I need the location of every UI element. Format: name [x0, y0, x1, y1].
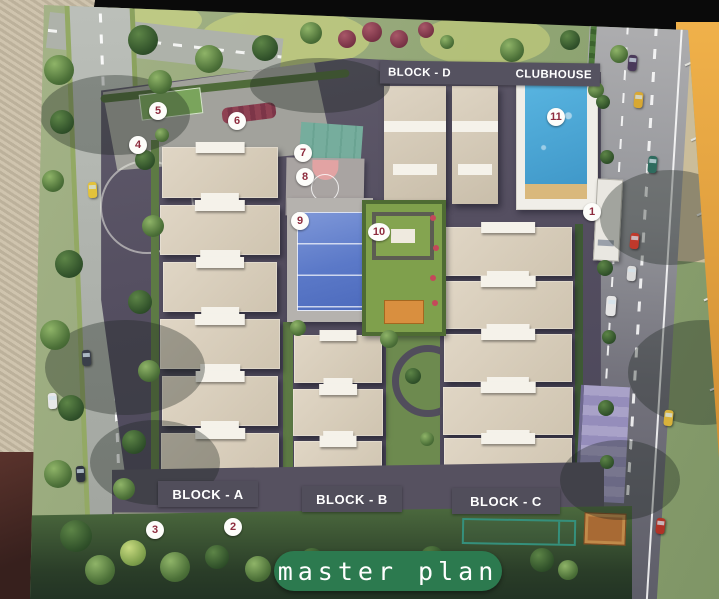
- block-c-label-text: BLOCK - C: [470, 494, 542, 509]
- tree: [602, 330, 616, 344]
- tree: [598, 400, 614, 416]
- tree: [530, 548, 554, 572]
- marker-6: 6: [228, 112, 246, 130]
- tree: [155, 128, 169, 142]
- block-c-building: [443, 281, 573, 329]
- car: [663, 410, 674, 427]
- car: [627, 55, 637, 72]
- swimming-pool: [525, 84, 587, 190]
- flower-bed: [433, 245, 439, 251]
- car: [88, 182, 98, 198]
- car: [82, 350, 92, 366]
- tree: [300, 22, 322, 44]
- marker-1: 1: [583, 203, 601, 221]
- car: [633, 92, 643, 109]
- car: [48, 393, 58, 409]
- tree-shadow: [560, 440, 680, 520]
- pool-deck: [525, 184, 587, 199]
- car: [626, 266, 636, 282]
- car: [647, 156, 657, 174]
- marker-5: 5: [149, 102, 167, 120]
- tennis-court: [297, 212, 363, 311]
- top-label-bar: BLOCK - D CLUBHOUSE: [380, 60, 600, 86]
- block-c-label: BLOCK - C: [452, 488, 560, 514]
- tree: [113, 478, 135, 500]
- tree: [558, 560, 578, 580]
- tree: [290, 320, 306, 336]
- tree: [245, 556, 271, 582]
- play-area: [384, 300, 424, 324]
- tree: [40, 320, 70, 350]
- master-plan-print: BLOCK - D CLUBHOUSE BLOCK - A BLOCK - B …: [0, 0, 719, 599]
- tree: [205, 545, 229, 569]
- car: [76, 466, 86, 482]
- tree: [610, 45, 628, 63]
- block-a-label-text: BLOCK - A: [172, 487, 243, 502]
- block-c-building: [444, 334, 572, 382]
- marker-10: 10: [368, 223, 390, 241]
- marker-4: 4: [129, 136, 147, 154]
- tree: [440, 35, 454, 49]
- cricket-practice-pitch: [462, 518, 576, 546]
- block-d-building: [452, 86, 498, 204]
- tree: [338, 30, 356, 48]
- tree: [42, 170, 64, 192]
- tree: [120, 540, 146, 566]
- tree: [252, 35, 278, 61]
- tree: [160, 552, 190, 582]
- flower-bed: [430, 275, 436, 281]
- clubhouse-label: CLUBHOUSE: [515, 68, 592, 81]
- tree: [420, 432, 434, 446]
- tree: [500, 38, 524, 62]
- tree: [405, 368, 421, 384]
- block-d-building: [384, 86, 446, 204]
- tree: [58, 395, 84, 421]
- tree: [138, 360, 160, 382]
- flower-bed: [432, 300, 438, 306]
- photo-of-master-plan: BLOCK - D CLUBHOUSE BLOCK - A BLOCK - B …: [0, 0, 719, 599]
- tree: [418, 22, 434, 38]
- tree: [128, 290, 152, 314]
- car: [655, 518, 666, 535]
- block-b-label: BLOCK - B: [302, 486, 402, 512]
- tree: [390, 30, 408, 48]
- tree: [44, 55, 74, 85]
- tree: [60, 520, 92, 552]
- tree: [597, 260, 613, 276]
- block-b-building: [294, 335, 382, 383]
- marker-8: 8: [296, 168, 314, 186]
- tree: [195, 45, 223, 73]
- tree: [55, 250, 83, 278]
- flower-bed: [430, 215, 436, 221]
- block-a-label: BLOCK - A: [158, 481, 258, 507]
- marker-2: 2: [224, 518, 242, 536]
- tree: [600, 150, 614, 164]
- marker-11: 11: [547, 108, 565, 126]
- block-c-building: [443, 387, 573, 435]
- tree: [148, 70, 172, 94]
- car: [605, 296, 616, 317]
- block-c-building: [444, 227, 572, 276]
- tree: [44, 460, 72, 488]
- block-b-label-text: BLOCK - B: [316, 492, 388, 507]
- block-a-building: [160, 205, 280, 255]
- tree: [560, 30, 580, 50]
- block-b-building: [293, 389, 383, 436]
- block-a-building: [162, 147, 278, 198]
- tree: [122, 430, 146, 454]
- block-a-building: [163, 262, 277, 312]
- marker-7: 7: [294, 144, 312, 162]
- block-d-label: BLOCK - D: [388, 66, 451, 79]
- tree: [380, 330, 398, 348]
- tree: [362, 22, 382, 42]
- tree: [142, 215, 164, 237]
- master-plan-badge-text: master plan: [278, 557, 499, 586]
- tree: [85, 555, 115, 585]
- master-plan-badge: master plan: [274, 551, 502, 591]
- tree: [600, 455, 614, 469]
- marker-3: 3: [146, 521, 164, 539]
- marker-9: 9: [291, 212, 309, 230]
- tree: [50, 110, 74, 134]
- tree: [128, 25, 158, 55]
- car: [629, 233, 639, 250]
- clubhouse-building: [516, 76, 598, 210]
- tree-shadow: [250, 58, 390, 113]
